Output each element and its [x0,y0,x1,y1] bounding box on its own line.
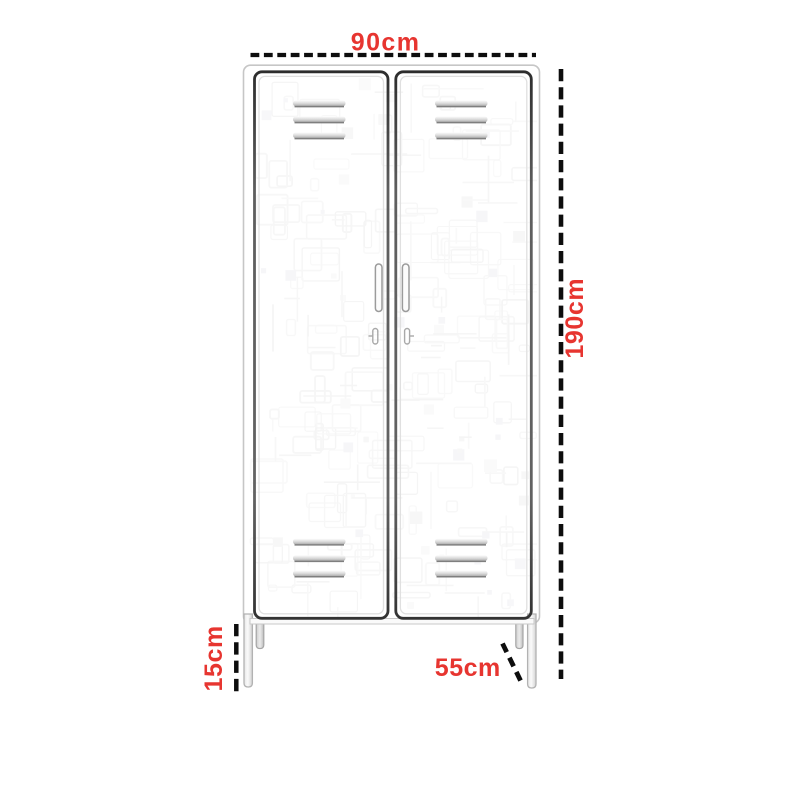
svg-text:190cm: 190cm [561,278,589,359]
svg-text:15cm: 15cm [200,625,228,691]
svg-text:55cm: 55cm [435,654,501,682]
svg-text:90cm: 90cm [351,29,421,57]
